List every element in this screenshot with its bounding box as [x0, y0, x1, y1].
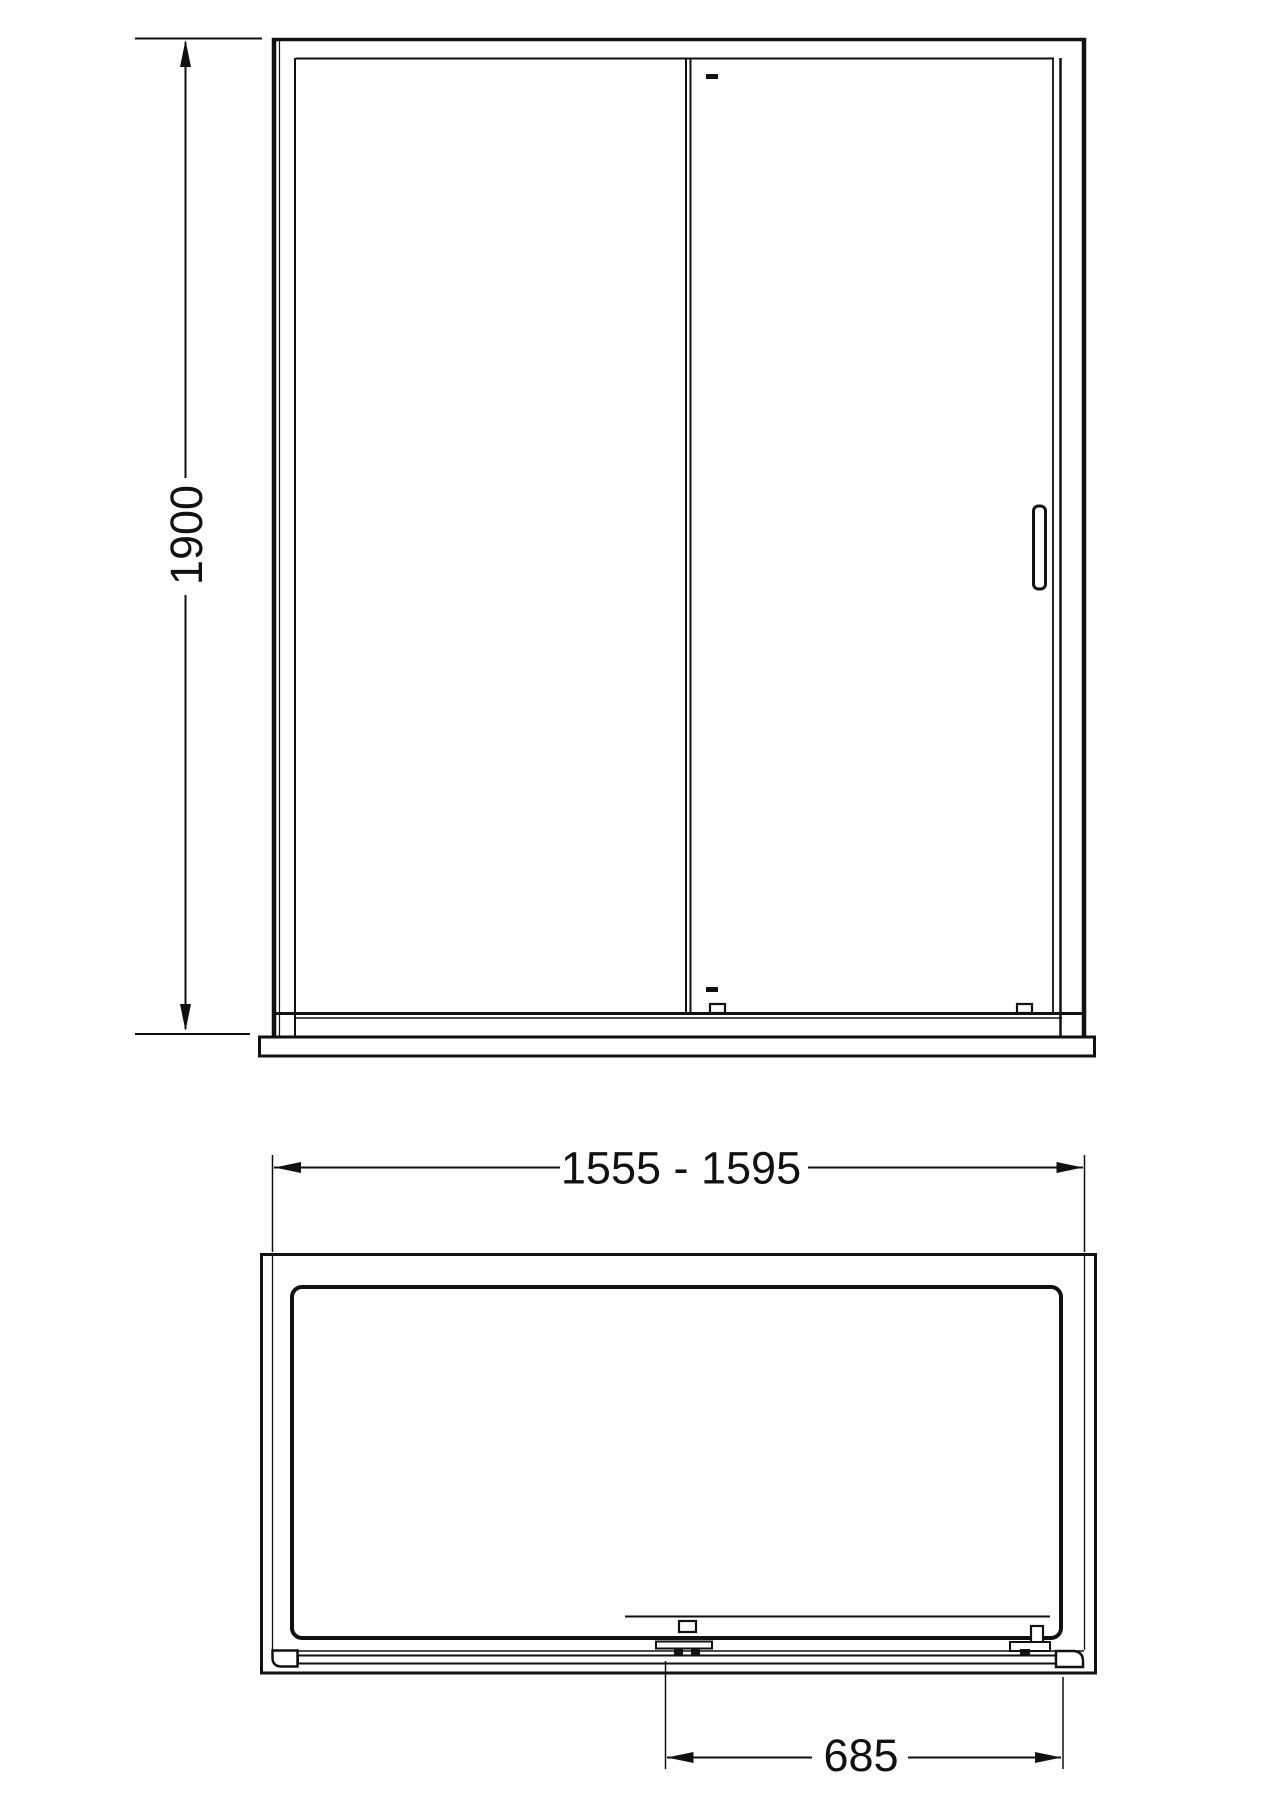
tray-inner-rect — [292, 1287, 1061, 1638]
door-handle — [1034, 506, 1046, 589]
track-corner-piece-right — [1056, 1651, 1083, 1667]
door-frame — [272, 38, 1086, 1036]
shower-tray-front — [260, 1037, 1095, 1056]
center-roller-box — [679, 1621, 696, 1632]
right-roller-foot — [1020, 1649, 1030, 1655]
arrow-left-icon — [275, 1162, 302, 1173]
arrow-down-icon — [180, 1004, 191, 1031]
bottom-roller-guide-left — [710, 1004, 725, 1013]
technical-drawing-page: 1900 1555 - 1595 685 — [0, 0, 1272, 1800]
plan-view — [262, 1155, 1096, 1769]
arrow-up-icon — [180, 40, 191, 67]
front-elevation-view — [135, 38, 1095, 1056]
center-roller-foot-1 — [674, 1649, 683, 1655]
roller-mark-bottom — [706, 987, 718, 992]
right-roller-box — [1031, 1626, 1043, 1643]
bottom-roller-guide-right — [1017, 1004, 1032, 1013]
shower-enclosure-drawing: 1900 1555 - 1595 685 — [0, 0, 1272, 1800]
track-bar — [298, 1656, 1060, 1664]
width-dimension-label: 1555 - 1595 — [561, 1143, 801, 1194]
center-roller-carriage — [656, 1642, 712, 1649]
opening-dimension-label: 685 — [823, 1730, 898, 1781]
roller-mark-top — [706, 74, 718, 79]
track-end-cap-left — [273, 1651, 298, 1667]
glass-panels — [686, 58, 1061, 1036]
tray-plan-outline — [262, 1255, 1096, 1674]
center-roller-foot-2 — [691, 1649, 700, 1655]
height-dimension-label: 1900 — [161, 485, 212, 585]
arrow-right-icon — [1035, 1752, 1062, 1763]
arrow-left-icon — [667, 1752, 694, 1763]
arrow-right-icon — [1057, 1162, 1084, 1173]
